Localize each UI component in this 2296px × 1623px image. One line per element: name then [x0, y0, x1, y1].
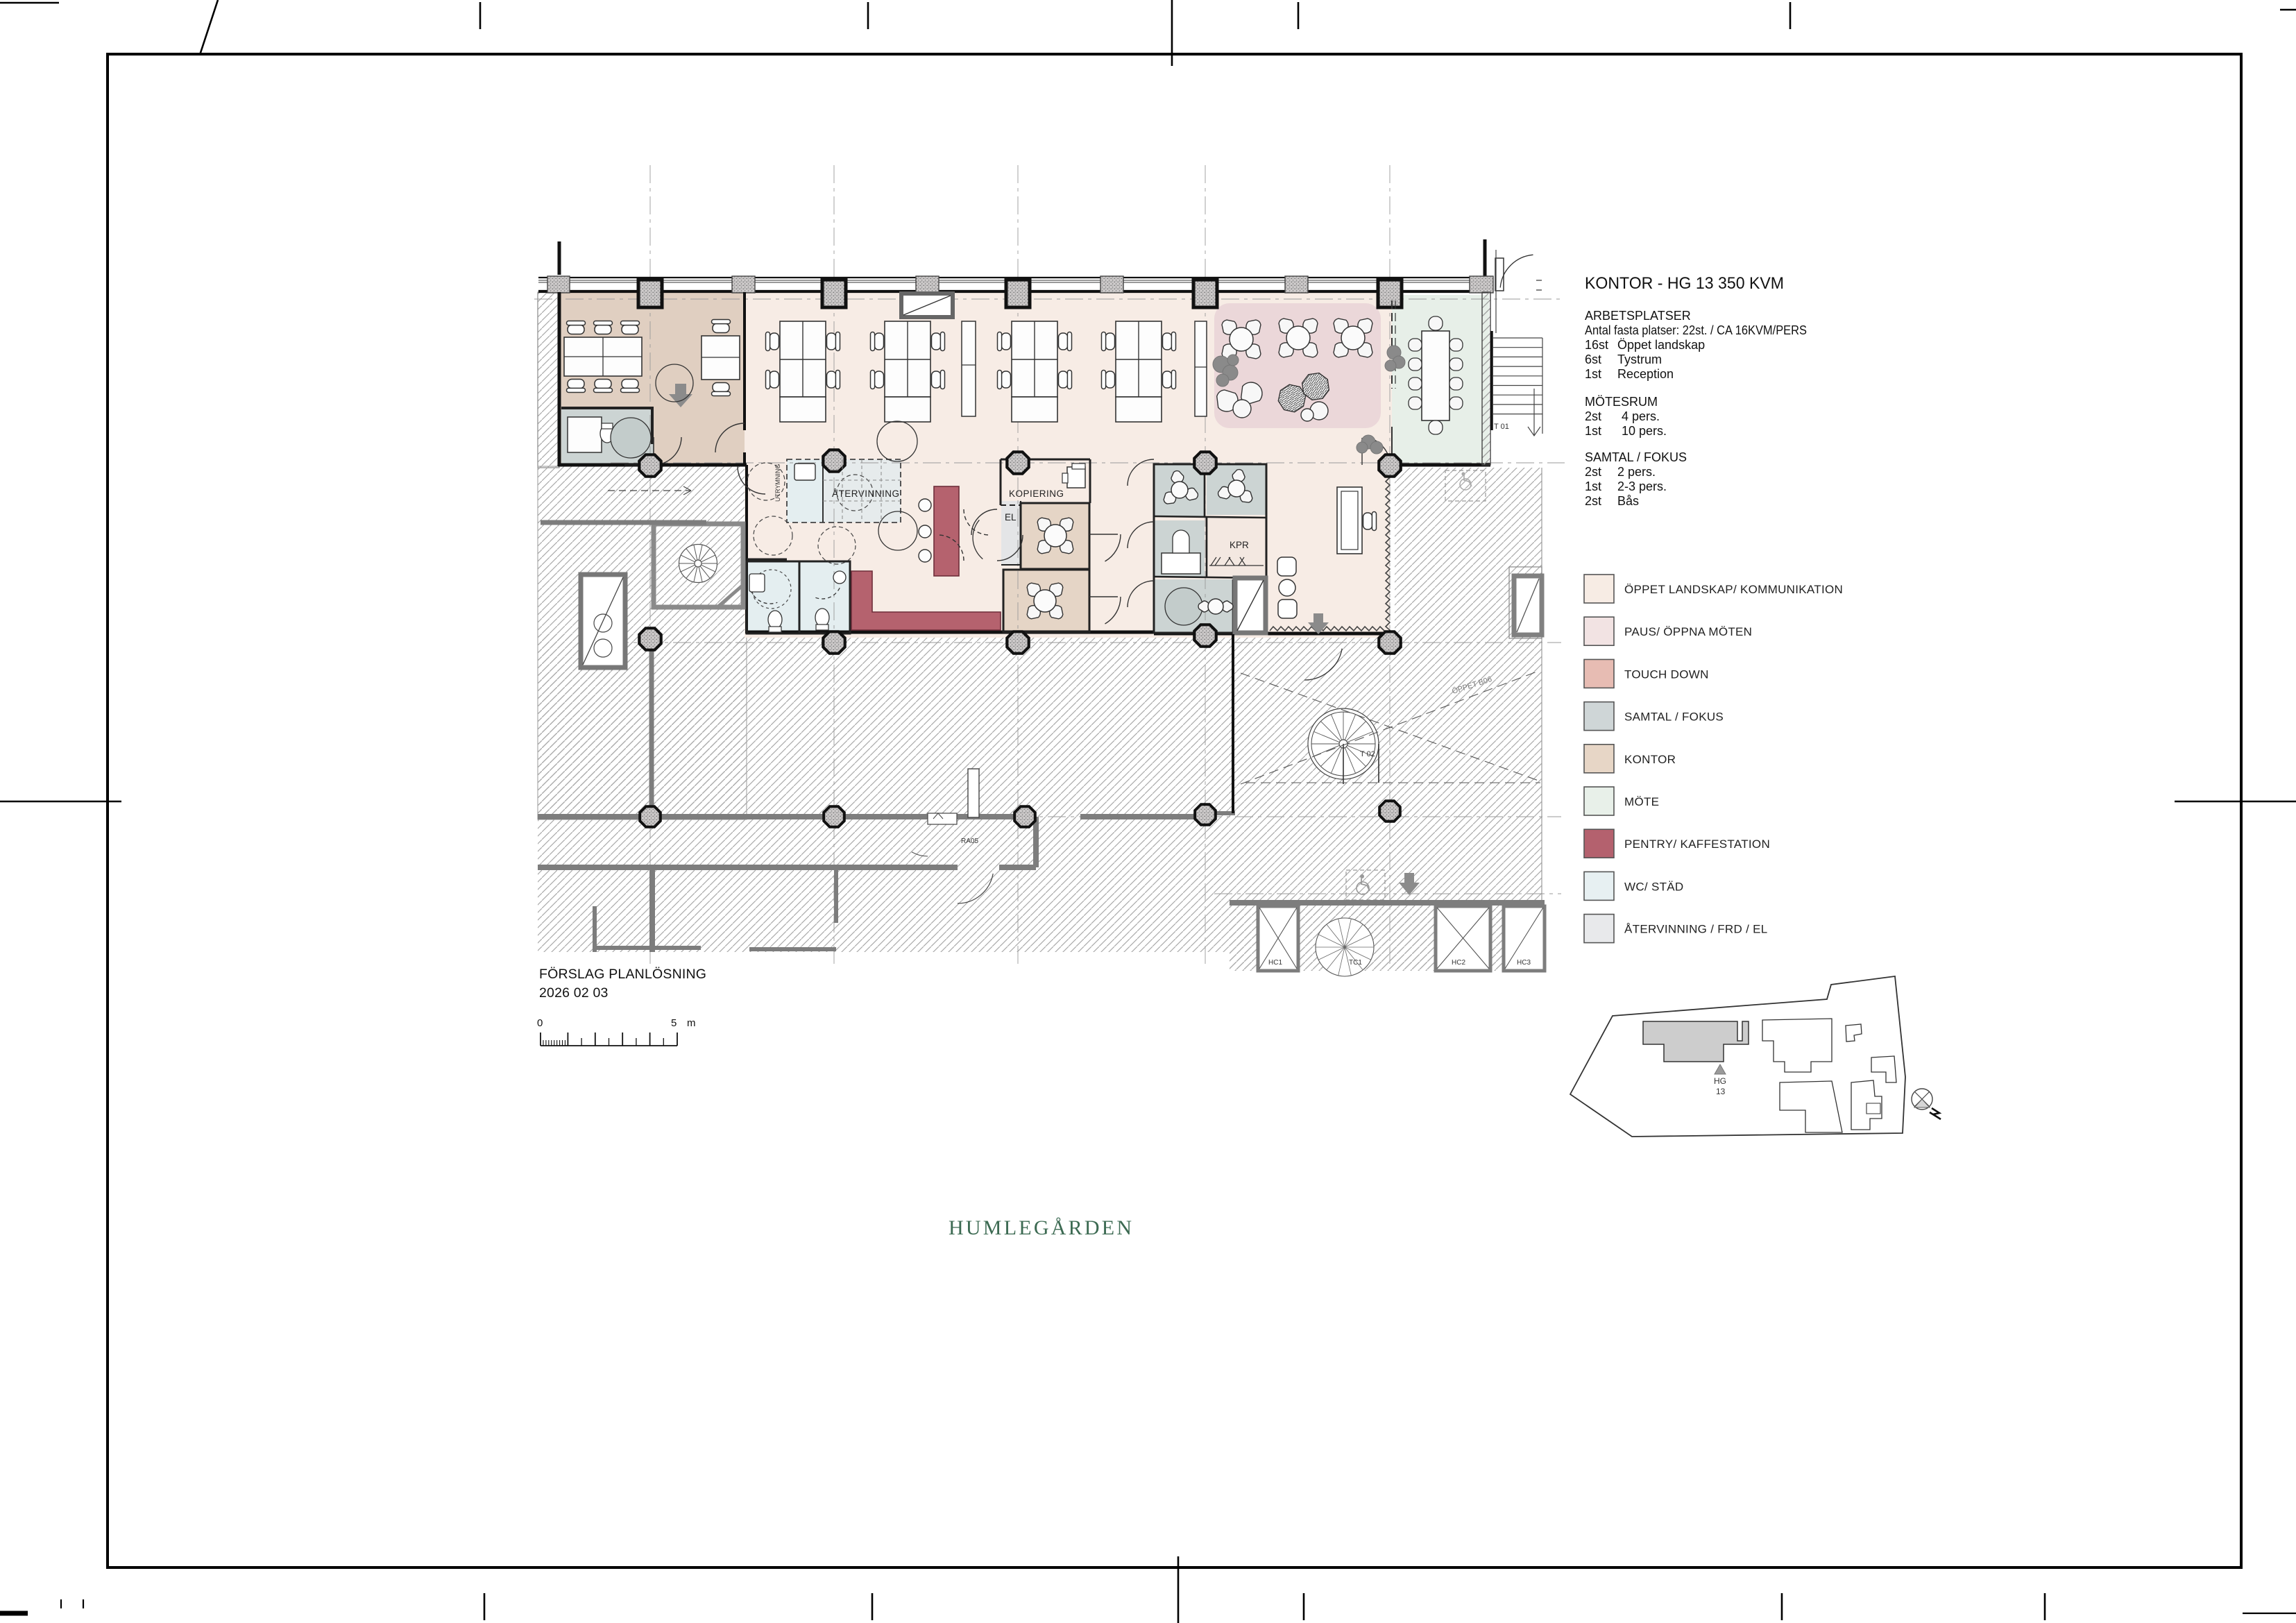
- svg-text:HC1: HC1: [1268, 959, 1282, 967]
- svg-text:13: 13: [1716, 1087, 1726, 1096]
- svg-text:Öppet landskap: Öppet landskap: [1617, 338, 1705, 352]
- svg-text:ÖPPET LANDSKAP/ KOMMUNIKATION: ÖPPET LANDSKAP/ KOMMUNIKATION: [1624, 583, 1843, 596]
- svg-text:SAMTAL / FOKUS: SAMTAL / FOKUS: [1585, 450, 1687, 464]
- svg-text:ÅTERVINNING: ÅTERVINNING: [832, 488, 900, 499]
- svg-text:KONTOR: KONTOR: [1624, 753, 1676, 766]
- svg-text:RA05: RA05: [961, 838, 978, 845]
- svg-text:16st: 16st: [1585, 338, 1608, 352]
- svg-text:2st: 2st: [1585, 494, 1601, 508]
- svg-text:0: 0: [537, 1017, 543, 1029]
- svg-text:2-3 pers.: 2-3 pers.: [1617, 479, 1667, 493]
- svg-text:1st: 1st: [1585, 424, 1601, 438]
- svg-text:KPR: KPR: [1230, 540, 1249, 550]
- svg-text:5: 5: [671, 1017, 677, 1029]
- svg-text:UTRYMNING: UTRYMNING: [774, 464, 781, 502]
- svg-text:ARBETSPLATSER: ARBETSPLATSER: [1585, 309, 1691, 323]
- svg-text:EL: EL: [1005, 512, 1017, 522]
- svg-text:T 01: T 01: [1494, 423, 1509, 431]
- svg-text:1st: 1st: [1585, 367, 1601, 381]
- svg-text:2st: 2st: [1585, 409, 1601, 423]
- svg-text:Reception: Reception: [1617, 367, 1674, 381]
- svg-text:4 pers.: 4 pers.: [1622, 409, 1660, 423]
- svg-text:ÅTERVINNING / FRD / EL: ÅTERVINNING / FRD / EL: [1624, 923, 1768, 936]
- svg-text:MÖTESRUM: MÖTESRUM: [1585, 395, 1658, 409]
- svg-text:Antal fasta platser: 22st. / C: Antal fasta platser: 22st. / CA 16KVM/PE…: [1585, 323, 1807, 337]
- svg-text:HC2: HC2: [1452, 959, 1465, 967]
- svg-text:m: m: [687, 1017, 696, 1029]
- svg-text:Bås: Bås: [1617, 494, 1639, 508]
- svg-text:6st: 6st: [1585, 352, 1601, 366]
- svg-text:2026 02 03: 2026 02 03: [539, 985, 609, 1001]
- svg-text:TOUCH DOWN: TOUCH DOWN: [1624, 668, 1709, 681]
- svg-text:KOPIERING: KOPIERING: [1009, 488, 1064, 499]
- svg-text:FÖRSLAG PLANLÖSNING: FÖRSLAG PLANLÖSNING: [539, 967, 706, 982]
- svg-text:HG: HG: [1714, 1076, 1726, 1086]
- svg-text:1st: 1st: [1585, 479, 1601, 493]
- svg-text:PENTRY/ KAFFESTATION: PENTRY/ KAFFESTATION: [1624, 838, 1770, 851]
- svg-text:WC/ STÄD: WC/ STÄD: [1624, 880, 1684, 893]
- svg-text:HUMLEGÅRDEN: HUMLEGÅRDEN: [949, 1216, 1138, 1239]
- svg-text:TC1: TC1: [1349, 959, 1362, 967]
- svg-text:Tystrum: Tystrum: [1617, 352, 1662, 366]
- svg-text:10 pers.: 10 pers.: [1622, 424, 1667, 438]
- svg-text:HC3: HC3: [1517, 959, 1531, 967]
- svg-text:SAMTAL / FOKUS: SAMTAL / FOKUS: [1624, 711, 1724, 724]
- svg-text:2st: 2st: [1585, 465, 1601, 479]
- svg-text:PAUS/ ÖPPNA MÖTEN: PAUS/ ÖPPNA MÖTEN: [1624, 625, 1752, 638]
- svg-text:MÖTE: MÖTE: [1624, 795, 1659, 808]
- svg-text:KONTOR - HG 13 350 KVM: KONTOR - HG 13 350 KVM: [1585, 274, 1784, 293]
- svg-text:T 02: T 02: [1360, 750, 1375, 758]
- svg-text:2 pers.: 2 pers.: [1617, 465, 1656, 479]
